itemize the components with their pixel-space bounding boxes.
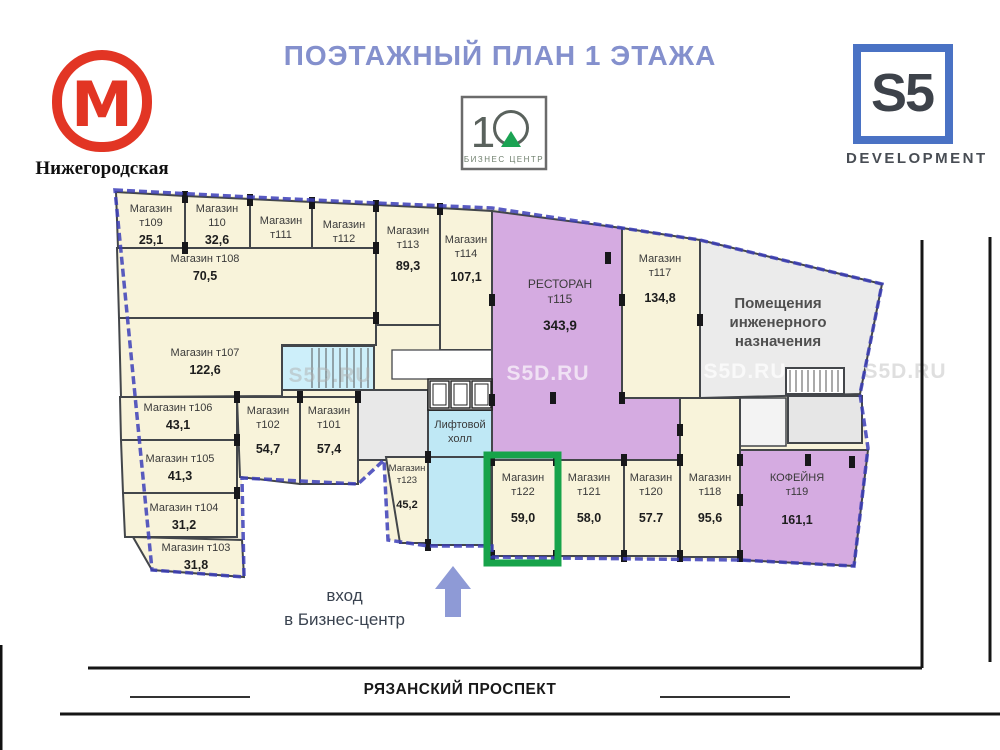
metro-letter: М (71, 74, 133, 136)
room-t102-label: Магазин (247, 405, 289, 417)
entrance-label-line2: в Бизнес-центр (284, 610, 405, 629)
room-t108 (117, 248, 376, 318)
room-t120-label: т120 (639, 486, 662, 498)
room-t108-area: 70,5 (193, 269, 217, 283)
room-t120-label: Магазин (630, 472, 672, 484)
business-center-logo-icon: 1 БИЗНЕС ЦЕНТР (456, 94, 551, 176)
wall-pier (605, 252, 611, 264)
wall-pier (373, 242, 379, 254)
room-t106-label: Магазин т106 (144, 402, 213, 414)
wall-pier (182, 242, 188, 254)
wall-pier (677, 424, 683, 436)
room-t121-label: Магазин (568, 472, 610, 484)
entrance-arrow-icon (435, 566, 471, 617)
room-engineering-label: инженерного (729, 314, 826, 331)
room-corridor-west (358, 390, 428, 460)
wall-pier (619, 294, 625, 306)
wall-pier (489, 294, 495, 306)
room-t113-area: 89,3 (396, 259, 420, 273)
room-t110-area: 32,6 (205, 233, 229, 247)
wall-pier (619, 392, 625, 404)
room-t110-label: 110 (208, 217, 226, 229)
room-restaurant-t115-area: 343,9 (543, 318, 577, 333)
wall-pier (373, 312, 379, 324)
room-t117-label: т117 (649, 267, 672, 279)
s5-logo-name: S5 (868, 66, 936, 120)
room-t110-label: Магазин (196, 203, 238, 215)
room-t113-label: т113 (397, 239, 420, 251)
room-stair-east (786, 368, 844, 394)
room-t113-label: Магазин (387, 225, 429, 237)
wall-pier (621, 454, 627, 466)
room-t122-label: т122 (511, 486, 534, 498)
room-t118-label: т118 (699, 486, 722, 498)
entrance-label: вход в Бизнес-центр (252, 584, 437, 632)
bc-logo-digit: 1 (471, 108, 495, 157)
room-t101-label: т101 (317, 419, 340, 431)
wall-pier (550, 392, 556, 404)
room-cafe-t119-label: КОФЕЙНЯ (770, 471, 824, 484)
room-t118-label: Магазин (689, 472, 731, 484)
room-t109-label: т109 (139, 217, 162, 229)
room-t123-label: Магазин (389, 463, 426, 474)
room-t121-label: т121 (577, 486, 600, 498)
wall-pier (234, 487, 240, 499)
wall-pier (234, 434, 240, 446)
room-t118-area: 95,6 (698, 511, 722, 525)
room-t101-label: Магазин (308, 405, 350, 417)
wall-pier (677, 454, 683, 466)
metro-station-name: Нижегородская (12, 158, 192, 180)
room-t107-label: Магазин т107 (171, 347, 240, 359)
room-t109-label: Магазин (130, 203, 172, 215)
room-t107-area: 122,6 (189, 363, 220, 377)
room-restaurant-t115-label: РЕСТОРАН (528, 277, 592, 291)
room-t108-label: Магазин т108 (171, 253, 240, 265)
wall-pier (355, 391, 361, 403)
wall-pier (425, 451, 431, 463)
room-lift-hall-label: холл (448, 433, 472, 445)
s5-logo-caption: DEVELOPMENT (846, 150, 988, 167)
room-t121-area: 58,0 (577, 511, 601, 525)
room-t103-area: 31,8 (184, 558, 208, 572)
room-engineering-label: назначения (735, 333, 821, 350)
room-utility-north (392, 350, 492, 379)
room-cafe-t119-area: 161,1 (781, 513, 812, 527)
watermark: S5D.RU (703, 360, 786, 383)
wall-pier (849, 456, 855, 468)
room-t114-label: т114 (455, 248, 478, 260)
wall-pier (489, 394, 495, 406)
room-cafe-t119-label: т119 (786, 486, 809, 498)
watermark: S5D.RU (288, 364, 371, 387)
room-t105-area: 41,3 (168, 469, 192, 483)
wall-pier (737, 494, 743, 506)
room-t114-area: 107,1 (450, 270, 481, 284)
wall-pier (234, 391, 240, 403)
room-t102-label: т102 (256, 419, 279, 431)
room-t117-label: Магазин (639, 253, 681, 265)
room-restaurant-t115-label: т115 (548, 292, 573, 306)
room-t114-label: Магазин (445, 234, 487, 246)
room-t102-area: 54,7 (256, 442, 280, 456)
room-t123-area: 45,2 (396, 499, 417, 511)
wall-pier (297, 391, 303, 403)
room-lift-hall-label: Лифтовой (434, 419, 485, 431)
metro-logo-icon: М (52, 50, 152, 152)
room-t105 (121, 440, 237, 493)
wall-pier (697, 314, 703, 326)
room-corridor-south (428, 457, 490, 545)
room-t123-label: т123 (397, 475, 417, 486)
wall-pier (737, 454, 743, 466)
room-cafe-t119 (740, 450, 868, 566)
page-title: ПОЭТАЖНЫЙ ПЛАН 1 ЭТАЖА (240, 40, 760, 72)
wall-pier (805, 454, 811, 466)
room-t103-label: Магазин т103 (162, 542, 231, 554)
room-t120-area: 57.7 (639, 511, 663, 525)
watermark: S5D.RU (863, 360, 946, 383)
room-t101-area: 57,4 (317, 442, 341, 456)
room-t109-area: 25,1 (139, 233, 163, 247)
street-name: РЯЗАНСКИЙ ПРОСПЕКТ (345, 681, 575, 699)
room-t112-label: Магазин (323, 219, 365, 231)
room-t112-label: т112 (333, 233, 356, 245)
room-t111-label: т111 (270, 229, 292, 241)
room-t122-area: 59,0 (511, 511, 535, 525)
room-engineering-label: Помещения (734, 295, 821, 312)
watermark: S5D.RU (506, 362, 589, 385)
room-t122-label: Магазин (502, 472, 544, 484)
entrance-label-line1: вход (326, 586, 362, 605)
room-utility-east (788, 396, 862, 443)
room-t117-area: 134,8 (644, 291, 675, 305)
room-t106-area: 43,1 (166, 418, 190, 432)
room-t111-label: Магазин (260, 215, 302, 227)
floor-plan-page: Магазинт10925,1Магазин11032,6Магазинт111… (0, 0, 1000, 750)
room-t105-label: Магазин т105 (146, 453, 215, 465)
room-t104-area: 31,2 (172, 518, 196, 532)
bc-logo-caption: БИЗНЕС ЦЕНТР (464, 155, 544, 164)
room-t104-label: Магазин т104 (150, 502, 219, 514)
